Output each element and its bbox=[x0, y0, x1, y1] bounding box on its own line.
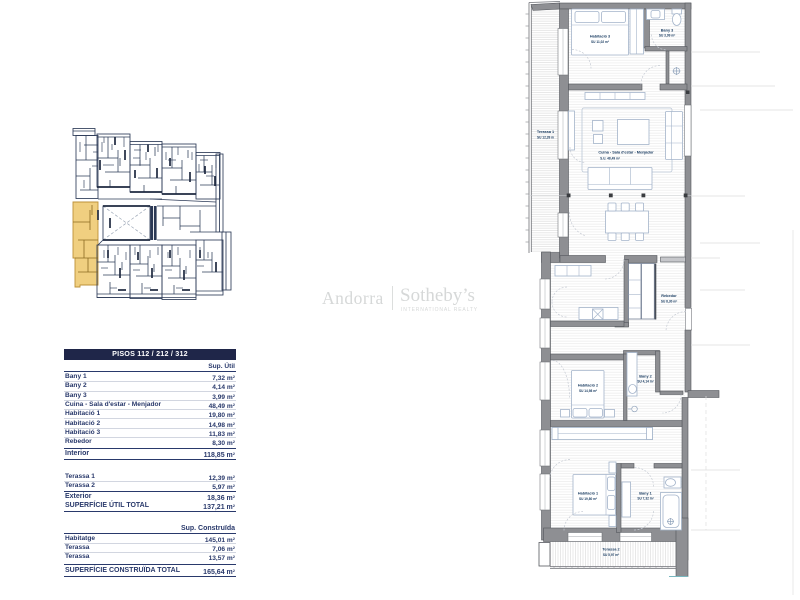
svg-text:SU 4,14 m²: SU 4,14 m² bbox=[637, 380, 653, 384]
svg-text:SU 3,99 m²: SU 3,99 m² bbox=[659, 34, 675, 38]
svg-text:Bany 3: Bany 3 bbox=[661, 29, 673, 33]
svg-text:Terassa 2: Terassa 2 bbox=[602, 548, 619, 552]
svg-text:Bany 2: Bany 2 bbox=[639, 375, 651, 379]
svg-text:SU 14,98 m²: SU 14,98 m² bbox=[579, 389, 597, 393]
svg-text:SU 7,32 m²: SU 7,32 m² bbox=[637, 497, 653, 501]
svg-text:SU 5,97 m²: SU 5,97 m² bbox=[603, 553, 619, 557]
svg-text:Habitació 2: Habitació 2 bbox=[578, 384, 598, 388]
svg-text:Rebedor: Rebedor bbox=[661, 294, 677, 298]
svg-text:Habitació 3: Habitació 3 bbox=[590, 35, 610, 39]
svg-text:SU 19,80 m²: SU 19,80 m² bbox=[579, 497, 597, 501]
svg-text:Bany 1: Bany 1 bbox=[639, 492, 651, 496]
svg-text:SU 12,39 m: SU 12,39 m bbox=[537, 136, 554, 140]
svg-text:Habitació 1: Habitació 1 bbox=[578, 492, 598, 496]
svg-text:Cuina - Sala d'estar - Menjado: Cuina - Sala d'estar - Menjador bbox=[598, 151, 654, 155]
svg-text:SU 11,02 m²: SU 11,02 m² bbox=[591, 40, 609, 44]
svg-text:SU 8,30 m²: SU 8,30 m² bbox=[661, 300, 677, 304]
svg-text:S.U. 48,49 m²: S.U. 48,49 m² bbox=[600, 157, 620, 161]
svg-text:Terassa 1: Terassa 1 bbox=[537, 130, 554, 134]
